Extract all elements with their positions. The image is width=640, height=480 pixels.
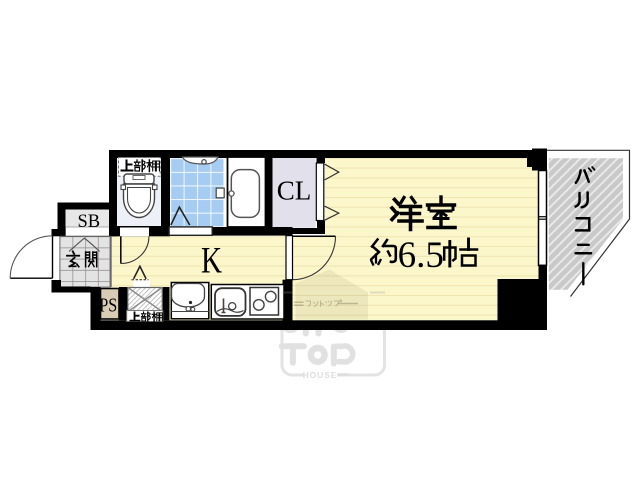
svg-text:HOUSE: HOUSE: [303, 370, 338, 380]
svg-text:K: K: [201, 239, 222, 280]
svg-text:SB: SB: [77, 212, 100, 232]
svg-text:PS: PS: [99, 296, 117, 317]
svg-text:6.5: 6.5: [398, 235, 444, 276]
svg-text:CL: CL: [277, 176, 312, 206]
